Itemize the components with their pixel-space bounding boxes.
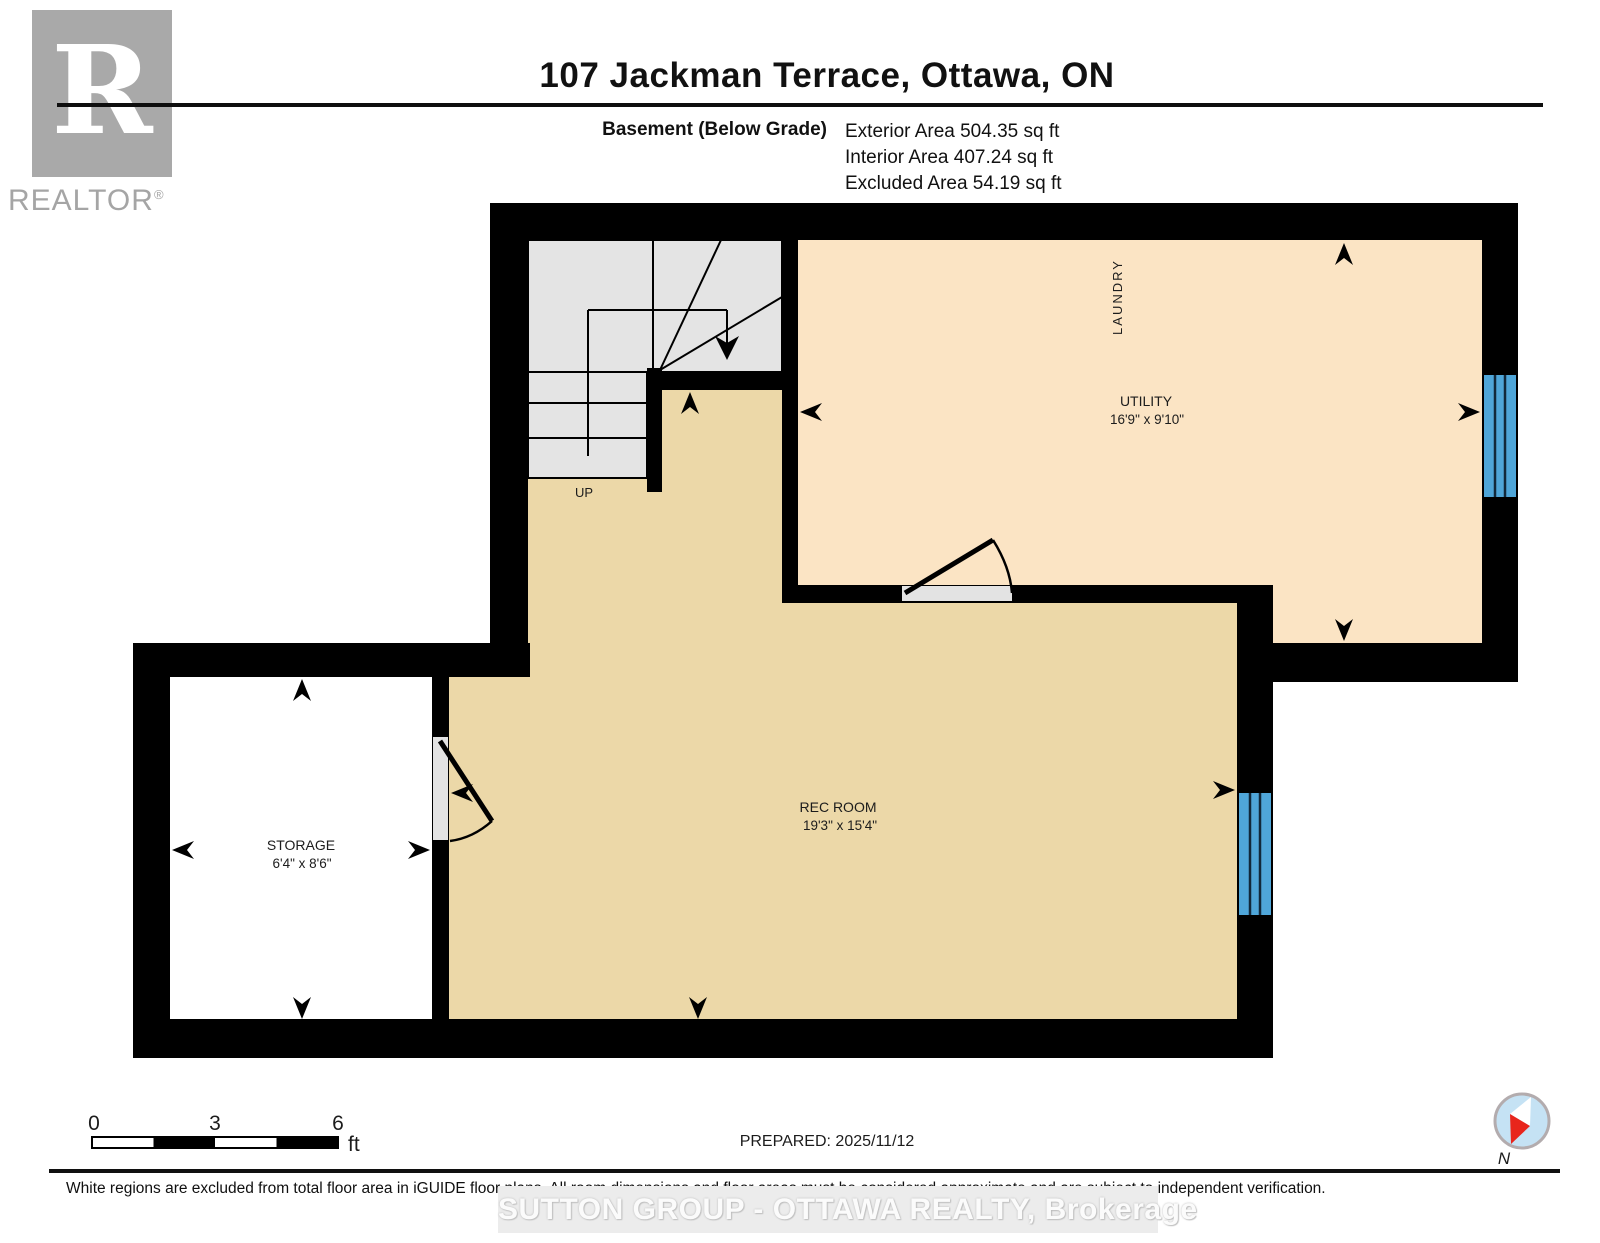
wall xyxy=(782,585,1260,603)
realtor-brand-text: REALTOR xyxy=(8,184,154,217)
utility-floor xyxy=(798,240,1482,643)
stairs-upper-floor xyxy=(528,240,782,372)
wall xyxy=(133,643,170,1058)
rec-room-window xyxy=(1239,793,1271,915)
realtor-brand-label: REALTOR® xyxy=(8,184,165,218)
wall xyxy=(490,203,1518,240)
room-label-utility: UTILITY xyxy=(1120,393,1173,409)
wall xyxy=(133,643,530,677)
utility-window xyxy=(1484,375,1516,497)
room-label-rec-room: REC ROOM xyxy=(800,799,877,815)
up-label: UP xyxy=(575,485,593,500)
realtor-logo: R xyxy=(32,10,172,177)
room-dims-utility: 16'9" x 9'10" xyxy=(1110,412,1184,427)
header-rule xyxy=(57,103,1543,107)
wall xyxy=(647,368,662,492)
scale-tick-3: 3 xyxy=(209,1112,221,1135)
laundry-label: LAUNDRY xyxy=(1110,259,1125,335)
wall xyxy=(490,203,528,643)
scale-bar-segment xyxy=(277,1137,339,1148)
room-dims-rec-room: 19'3" x 15'4" xyxy=(803,818,877,833)
scale-tick-6: 6 xyxy=(332,1112,344,1135)
window-glass xyxy=(1484,375,1516,497)
registered-mark: ® xyxy=(154,187,165,202)
wall xyxy=(133,1019,1273,1058)
floor-plan: LAUNDRY UTILITY 16'9" x 9'10" REC ROOM 1… xyxy=(0,0,1600,1243)
scale-tick-0: 0 xyxy=(88,1112,100,1135)
wall xyxy=(1237,643,1518,682)
prepared-date: PREPARED: 2025/11/12 xyxy=(740,1133,915,1150)
scale-bar: 0 3 6 ft xyxy=(88,1112,360,1156)
footer-rule xyxy=(49,1169,1560,1173)
door-threshold xyxy=(902,586,1012,601)
wall xyxy=(662,372,782,390)
floor-fills xyxy=(170,240,1482,1019)
scale-bar-segment xyxy=(154,1137,216,1148)
compass: N xyxy=(1495,1094,1549,1168)
brokerage-watermark: SUTTON GROUP - OTTAWA REALTY, Brokerage xyxy=(498,1186,1158,1233)
realtor-logo-letter: R xyxy=(51,29,152,151)
scale-unit-label: ft xyxy=(348,1133,360,1156)
north-label: N xyxy=(1498,1149,1511,1168)
wall xyxy=(432,677,449,1019)
room-dims-storage: 6'4" x 8'6" xyxy=(272,856,331,871)
room-label-storage: STORAGE xyxy=(267,837,335,853)
window-glass xyxy=(1239,793,1271,915)
wall xyxy=(782,240,798,603)
